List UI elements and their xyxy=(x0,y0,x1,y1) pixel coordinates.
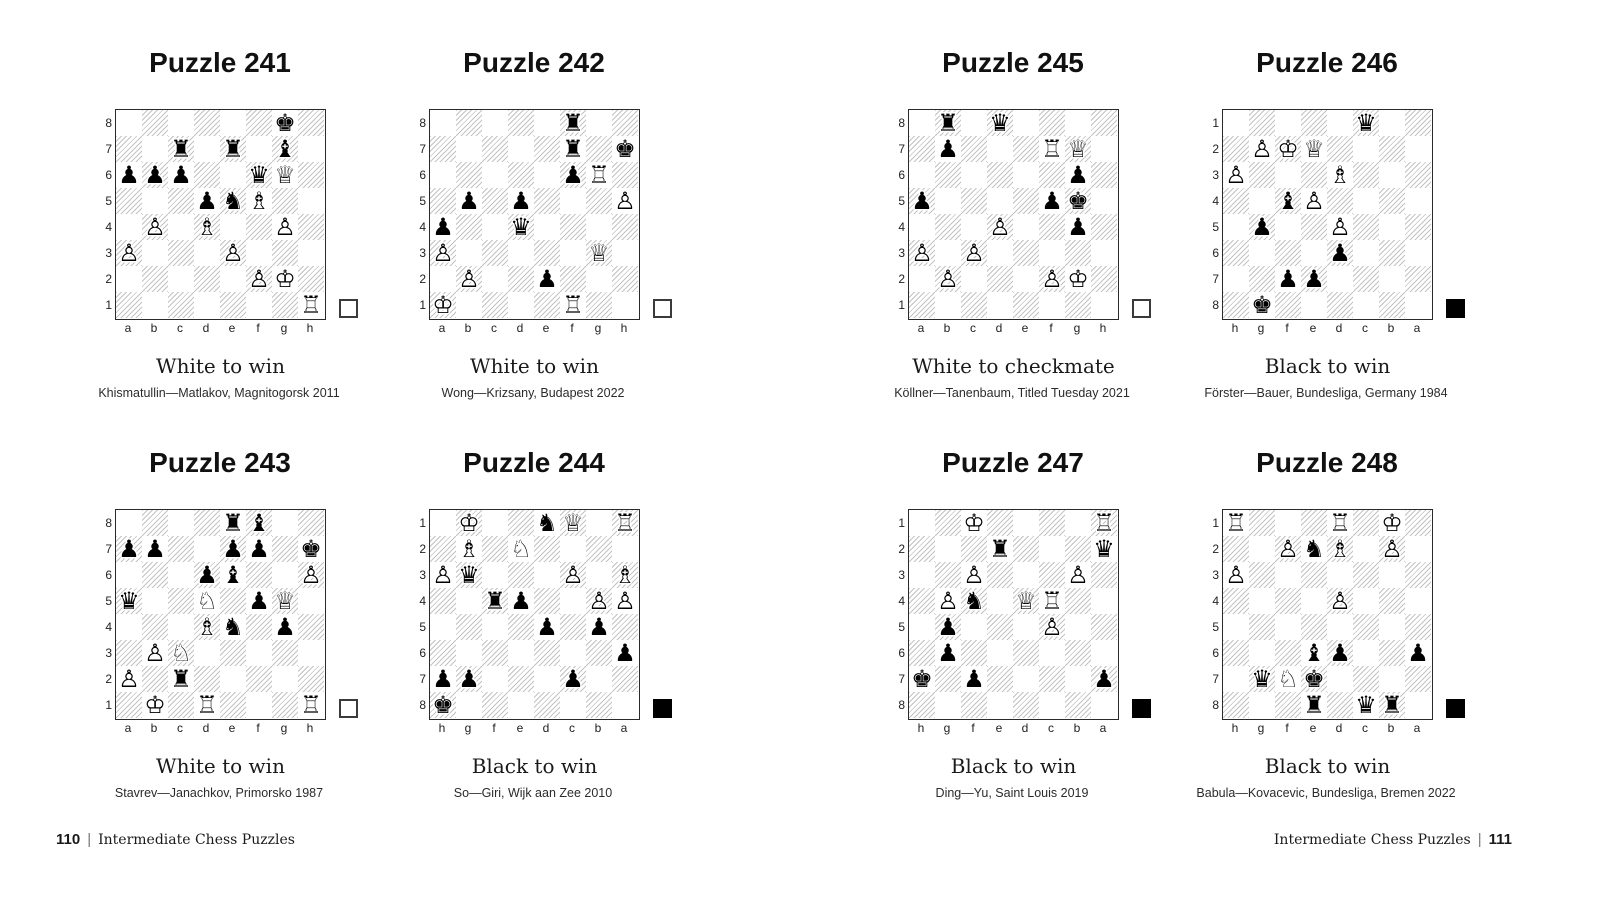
square-h8 xyxy=(1223,692,1249,718)
square-a2 xyxy=(612,536,638,562)
black-pawn-icon: ♟ xyxy=(536,267,558,291)
white-pawn-icon: ♙ xyxy=(1067,563,1089,587)
move-indicator-black xyxy=(653,699,672,718)
square-e8 xyxy=(508,692,534,718)
square-h6 xyxy=(298,162,324,188)
file-label-e: e xyxy=(533,320,559,337)
square-h6: ♙ xyxy=(298,562,324,588)
file-label-e: e xyxy=(986,720,1012,737)
white-queen-icon: ♕ xyxy=(274,589,296,613)
square-d6 xyxy=(194,162,220,188)
square-d4: ♛ xyxy=(508,214,534,240)
footer-right: Intermediate Chess Puzzles|111 xyxy=(1274,831,1512,848)
white-rook-icon: ♖ xyxy=(1225,511,1247,535)
square-b8 xyxy=(142,510,168,536)
white-pawn-icon: ♙ xyxy=(1041,615,1063,639)
square-e4 xyxy=(1301,588,1327,614)
square-g3 xyxy=(1249,562,1275,588)
puzzle-attribution: Babula—Kovacevic, Bundesliga, Bremen 202… xyxy=(1196,785,1456,801)
white-pawn-icon: ♙ xyxy=(1225,163,1247,187)
square-a5 xyxy=(1405,614,1431,640)
file-label-e: e xyxy=(1300,720,1326,737)
square-d5: ♙ xyxy=(1327,214,1353,240)
black-bishop-icon: ♝ xyxy=(1277,189,1299,213)
puzzle-title: Puzzle 244 xyxy=(429,442,639,484)
square-d3 xyxy=(508,240,534,266)
square-c8: ♛ xyxy=(1353,692,1379,718)
file-label-h: h xyxy=(611,320,637,337)
square-c6 xyxy=(1039,640,1065,666)
square-c2 xyxy=(1039,536,1065,562)
square-f4 xyxy=(246,214,272,240)
rank-label-1: 1 xyxy=(1207,510,1219,536)
square-a8 xyxy=(909,110,935,136)
square-d3: ♗ xyxy=(1327,162,1353,188)
file-label-d: d xyxy=(507,320,533,337)
file-label-c: c xyxy=(1352,720,1378,737)
square-h1 xyxy=(430,510,456,536)
square-a8 xyxy=(430,110,456,136)
black-pawn-icon: ♟ xyxy=(458,667,480,691)
move-indicator-white xyxy=(1132,299,1151,318)
white-rook-icon: ♖ xyxy=(1329,511,1351,535)
square-d7 xyxy=(987,136,1013,162)
square-h4 xyxy=(612,214,638,240)
white-pawn-icon: ♙ xyxy=(911,241,933,265)
square-f8: ♝ xyxy=(246,510,272,536)
white-pawn-icon: ♙ xyxy=(118,667,140,691)
square-a8 xyxy=(1091,692,1117,718)
black-pawn-icon: ♟ xyxy=(1329,241,1351,265)
board-area: 12345678 ♔♖♜♛♙♙♙♞♕♖♟♙♟♚♟♟ xyxy=(908,509,1119,720)
square-b8 xyxy=(1065,692,1091,718)
square-g2: ♙ xyxy=(1249,136,1275,162)
square-b4: ♙ xyxy=(142,214,168,240)
square-g8 xyxy=(586,110,612,136)
square-e2 xyxy=(220,266,246,292)
square-b6 xyxy=(1379,640,1405,666)
black-bishop-icon: ♝ xyxy=(1303,641,1325,665)
square-d5: ♟ xyxy=(194,188,220,214)
white-king-icon: ♔ xyxy=(963,511,985,535)
square-h5 xyxy=(909,614,935,640)
square-g2 xyxy=(272,666,298,692)
white-pawn-icon: ♙ xyxy=(222,241,244,265)
square-d2 xyxy=(1013,536,1039,562)
square-a1 xyxy=(909,292,935,318)
chessboard: ♜♛♟♖♕♟♟♟♚♙♟♙♙♙♙♔ xyxy=(908,109,1119,320)
white-queen-icon: ♕ xyxy=(274,163,296,187)
square-b1 xyxy=(456,292,482,318)
square-d1 xyxy=(508,292,534,318)
square-h7: ♚ xyxy=(298,536,324,562)
square-f3 xyxy=(560,240,586,266)
square-a1: ♖ xyxy=(1091,510,1117,536)
square-f5 xyxy=(482,614,508,640)
square-f6: ♛ xyxy=(246,162,272,188)
square-h4 xyxy=(1091,214,1117,240)
square-b6 xyxy=(1065,640,1091,666)
square-b5 xyxy=(1379,614,1405,640)
square-h2 xyxy=(430,536,456,562)
square-f3: ♙ xyxy=(961,562,987,588)
square-f4 xyxy=(1039,214,1065,240)
chessboard-wrap: 87654321 ♚♜♜♝♟♟♟♛♕♟♞♗♙♗♙♙♙♙♔♖ abcdefgh xyxy=(101,109,325,337)
board-area: 12345678 ♔♞♕♖♗♘♙♛♙♗♜♟♙♙♟♟♟♟♟♟♚ xyxy=(429,509,640,720)
board-area: 12345678 ♖♖♔♙♞♗♙♙♙♝♟♟♛♘♚♜♛♜ xyxy=(1222,509,1433,720)
square-a7 xyxy=(909,136,935,162)
black-pawn-icon: ♟ xyxy=(1041,189,1063,213)
black-pawn-icon: ♟ xyxy=(1067,215,1089,239)
square-h6 xyxy=(1091,162,1117,188)
rank-label-3: 3 xyxy=(893,240,905,266)
square-h8 xyxy=(1091,110,1117,136)
rank-label-7: 7 xyxy=(1207,666,1219,692)
black-rook-icon: ♜ xyxy=(1303,693,1325,717)
square-b6 xyxy=(586,640,612,666)
rank-label-2: 2 xyxy=(100,266,112,292)
square-g5 xyxy=(586,188,612,214)
white-king-icon: ♔ xyxy=(432,293,454,317)
rank-label-2: 2 xyxy=(414,266,426,292)
square-b4 xyxy=(1379,588,1405,614)
square-a6 xyxy=(909,162,935,188)
square-h8 xyxy=(909,692,935,718)
square-h3 xyxy=(909,562,935,588)
square-g7 xyxy=(586,136,612,162)
square-a3 xyxy=(116,640,142,666)
rank-label-2: 2 xyxy=(1207,136,1219,162)
square-e7: ♟ xyxy=(1301,266,1327,292)
square-e8 xyxy=(987,692,1013,718)
rank-label-6: 6 xyxy=(414,162,426,188)
square-g5: ♟ xyxy=(935,614,961,640)
square-a3: ♙ xyxy=(909,240,935,266)
square-f3 xyxy=(246,640,272,666)
square-a8 xyxy=(1405,692,1431,718)
file-label-f: f xyxy=(245,320,271,337)
white-pawn-icon: ♙ xyxy=(614,589,636,613)
white-rook-icon: ♖ xyxy=(1041,589,1063,613)
white-bishop-icon: ♗ xyxy=(1329,163,1351,187)
square-h2 xyxy=(298,266,324,292)
white-rook-icon: ♖ xyxy=(1093,511,1115,535)
square-e2: ♘ xyxy=(508,536,534,562)
white-pawn-icon: ♙ xyxy=(963,563,985,587)
white-pawn-icon: ♙ xyxy=(300,563,322,587)
square-g1 xyxy=(586,292,612,318)
white-pawn-icon: ♙ xyxy=(1041,267,1063,291)
puzzle-block-243: Puzzle 243 87654321 ♜♝♟♟♟♟♚♟♝♙♛♘♟♕♗♞♟♙♘♙… xyxy=(101,442,325,842)
puzzle-block-245: Puzzle 245 87654321 ♜♛♟♖♕♟♟♟♚♙♟♙♙♙♙♔ abc… xyxy=(894,42,1118,442)
square-g6 xyxy=(272,562,298,588)
puzzle-attribution: So—Giri, Wijk aan Zee 2010 xyxy=(403,785,663,801)
square-e2: ♟ xyxy=(534,266,560,292)
white-queen-icon: ♕ xyxy=(588,241,610,265)
square-b3 xyxy=(935,240,961,266)
square-e2 xyxy=(220,666,246,692)
chessboard: ♔♞♕♖♗♘♙♛♙♗♜♟♙♙♟♟♟♟♟♟♚ xyxy=(429,509,640,720)
rank-labels: 12345678 xyxy=(1207,510,1219,718)
black-knight-icon: ♞ xyxy=(963,589,985,613)
black-rook-icon: ♜ xyxy=(170,667,192,691)
white-pawn-icon: ♙ xyxy=(144,641,166,665)
rank-label-1: 1 xyxy=(414,292,426,318)
rank-labels: 87654321 xyxy=(414,110,426,318)
square-d7 xyxy=(1327,266,1353,292)
chessboard: ♖♖♔♙♞♗♙♙♙♝♟♟♛♘♚♜♛♜ xyxy=(1222,509,1433,720)
square-e1 xyxy=(508,510,534,536)
square-b8 xyxy=(586,692,612,718)
white-pawn-icon: ♙ xyxy=(1277,537,1299,561)
file-labels: abcdefgh xyxy=(115,320,326,337)
file-label-f: f xyxy=(1274,320,1300,337)
black-pawn-icon: ♟ xyxy=(588,615,610,639)
square-d8 xyxy=(508,110,534,136)
square-h6 xyxy=(909,640,935,666)
black-pawn-icon: ♟ xyxy=(1093,667,1115,691)
square-b3 xyxy=(1379,562,1405,588)
square-e7 xyxy=(534,136,560,162)
square-g4 xyxy=(1249,588,1275,614)
black-pawn-icon: ♟ xyxy=(510,589,532,613)
rank-label-6: 6 xyxy=(414,640,426,666)
square-c3: ♙ xyxy=(560,562,586,588)
square-f7: ♟ xyxy=(246,536,272,562)
square-h6 xyxy=(1223,240,1249,266)
square-g1 xyxy=(1065,292,1091,318)
file-label-b: b xyxy=(141,720,167,737)
puzzle-caption: Black to win xyxy=(429,754,640,778)
white-rook-icon: ♖ xyxy=(196,693,218,717)
square-b3: ♙ xyxy=(1065,562,1091,588)
square-c8 xyxy=(482,110,508,136)
white-king-icon: ♔ xyxy=(274,267,296,291)
square-f6 xyxy=(961,640,987,666)
square-a2: ♙ xyxy=(116,666,142,692)
square-h3 xyxy=(298,640,324,666)
square-f1 xyxy=(1275,110,1301,136)
square-b1 xyxy=(1379,110,1405,136)
black-pawn-icon: ♟ xyxy=(248,537,270,561)
white-pawn-icon: ♙ xyxy=(458,267,480,291)
file-label-e: e xyxy=(219,320,245,337)
white-pawn-icon: ♙ xyxy=(432,241,454,265)
square-g8 xyxy=(456,692,482,718)
square-c7: ♜ xyxy=(168,136,194,162)
square-g4: ♙ xyxy=(272,214,298,240)
rank-label-3: 3 xyxy=(100,640,112,666)
square-b8: ♜ xyxy=(1379,692,1405,718)
square-h2 xyxy=(909,536,935,562)
chessboard-wrap: 87654321 ♜♛♟♖♕♟♟♟♚♙♟♙♙♙♙♔ abcdefgh xyxy=(894,109,1118,337)
square-c2: ♜ xyxy=(168,666,194,692)
square-b1 xyxy=(1065,510,1091,536)
square-h4 xyxy=(298,214,324,240)
square-e6: ♝ xyxy=(1301,640,1327,666)
square-h7: ♚ xyxy=(612,136,638,162)
square-h1: ♖ xyxy=(1223,510,1249,536)
square-e3 xyxy=(220,640,246,666)
square-f6 xyxy=(1275,640,1301,666)
square-c3: ♙ xyxy=(961,240,987,266)
puzzle-caption: Black to win xyxy=(1222,754,1433,778)
square-e5: ♞ xyxy=(220,188,246,214)
rank-label-7: 7 xyxy=(893,136,905,162)
black-pawn-icon: ♟ xyxy=(458,189,480,213)
square-b5 xyxy=(935,188,961,214)
square-c6: ♟ xyxy=(168,162,194,188)
square-g8 xyxy=(1249,692,1275,718)
square-a3: ♙ xyxy=(116,240,142,266)
square-d8 xyxy=(1013,692,1039,718)
square-a5 xyxy=(430,188,456,214)
square-g5 xyxy=(1249,614,1275,640)
rank-label-7: 7 xyxy=(414,666,426,692)
square-d3 xyxy=(1013,562,1039,588)
square-g5 xyxy=(272,188,298,214)
square-f4: ♜ xyxy=(482,588,508,614)
square-g7: ♛ xyxy=(1249,666,1275,692)
move-indicator-black xyxy=(1446,699,1465,718)
square-a6: ♟ xyxy=(1405,640,1431,666)
white-rook-icon: ♖ xyxy=(300,293,322,317)
puzzle-title: Puzzle 241 xyxy=(115,42,325,84)
square-g6: ♟ xyxy=(935,640,961,666)
white-pawn-icon: ♙ xyxy=(1381,537,1403,561)
file-label-h: h xyxy=(1222,720,1248,737)
square-a2 xyxy=(909,266,935,292)
square-h2 xyxy=(1091,266,1117,292)
square-a6 xyxy=(1405,240,1431,266)
square-e6 xyxy=(508,640,534,666)
white-queen-icon: ♕ xyxy=(1303,137,1325,161)
square-f1 xyxy=(246,292,272,318)
square-h2 xyxy=(612,266,638,292)
white-pawn-icon: ♙ xyxy=(937,589,959,613)
square-b4 xyxy=(1065,588,1091,614)
square-f6: ♟ xyxy=(560,162,586,188)
square-f6 xyxy=(482,640,508,666)
square-a2 xyxy=(1405,536,1431,562)
square-d1: ♖ xyxy=(194,692,220,718)
white-pawn-icon: ♙ xyxy=(1251,137,1273,161)
black-pawn-icon: ♟ xyxy=(1303,267,1325,291)
square-c5 xyxy=(168,188,194,214)
square-a3: ♗ xyxy=(612,562,638,588)
chessboard-wrap: 12345678 ♔♞♕♖♗♘♙♛♙♗♜♟♙♙♟♟♟♟♟♟♚ hgfedcba xyxy=(415,509,639,737)
puzzle-title: Puzzle 247 xyxy=(908,442,1118,484)
square-g6: ♖ xyxy=(586,162,612,188)
square-c3 xyxy=(1353,162,1379,188)
page-left: Puzzle 241 87654321 ♚♜♜♝♟♟♟♛♕♟♞♗♙♗♙♙♙♙♔♖… xyxy=(101,42,639,842)
square-c7 xyxy=(1353,266,1379,292)
rank-label-4: 4 xyxy=(893,214,905,240)
rank-label-1: 1 xyxy=(893,292,905,318)
black-pawn-icon: ♟ xyxy=(222,537,244,561)
square-d2 xyxy=(1327,136,1353,162)
black-queen-icon: ♛ xyxy=(1355,693,1377,717)
rank-labels: 12345678 xyxy=(893,510,905,718)
square-h3: ♙ xyxy=(1223,162,1249,188)
rank-label-8: 8 xyxy=(893,692,905,718)
square-c1 xyxy=(482,292,508,318)
square-e4: ♟ xyxy=(508,588,534,614)
footer-separator: | xyxy=(87,831,91,848)
square-h8 xyxy=(612,110,638,136)
file-label-g: g xyxy=(1248,720,1274,737)
rank-label-6: 6 xyxy=(1207,240,1219,266)
square-f2: ♙ xyxy=(1275,536,1301,562)
puzzle-block-248: Puzzle 248 12345678 ♖♖♔♙♞♗♙♙♙♝♟♟♛♘♚♜♛♜ h… xyxy=(1208,442,1432,842)
square-c7: ♟ xyxy=(560,666,586,692)
black-pawn-icon: ♟ xyxy=(144,163,166,187)
square-e4: ♞ xyxy=(220,614,246,640)
square-a4 xyxy=(116,214,142,240)
square-f1: ♔ xyxy=(961,510,987,536)
white-pawn-icon: ♙ xyxy=(1329,589,1351,613)
page-number: 110 xyxy=(56,831,80,848)
rank-label-5: 5 xyxy=(100,588,112,614)
black-pawn-icon: ♟ xyxy=(274,615,296,639)
square-e2: ♜ xyxy=(987,536,1013,562)
square-g1: ♔ xyxy=(456,510,482,536)
chessboard-wrap: 12345678 ♖♖♔♙♞♗♙♙♙♝♟♟♛♘♚♜♛♜ hgfedcba xyxy=(1208,509,1432,737)
square-d8 xyxy=(194,110,220,136)
puzzle-block-242: Puzzle 242 87654321 ♜♜♚♟♖♟♟♙♟♛♙♕♙♟♔♖ abc… xyxy=(415,42,639,442)
move-indicator-white xyxy=(339,299,358,318)
square-b4: ♙ xyxy=(586,588,612,614)
rank-label-7: 7 xyxy=(1207,266,1219,292)
square-a6 xyxy=(116,562,142,588)
square-h2 xyxy=(1223,136,1249,162)
square-g2: ♔ xyxy=(272,266,298,292)
square-b7 xyxy=(142,136,168,162)
square-a7: ♟ xyxy=(1091,666,1117,692)
black-king-icon: ♚ xyxy=(614,137,636,161)
square-c6 xyxy=(961,162,987,188)
square-e1 xyxy=(534,292,560,318)
rank-label-3: 3 xyxy=(1207,562,1219,588)
square-g7: ♝ xyxy=(272,136,298,162)
file-label-a: a xyxy=(429,320,455,337)
black-bishop-icon: ♝ xyxy=(248,511,270,535)
square-d2 xyxy=(194,266,220,292)
square-d4 xyxy=(1327,188,1353,214)
black-king-icon: ♚ xyxy=(1067,189,1089,213)
chessboard: ♜♜♚♟♖♟♟♙♟♛♙♕♙♟♔♖ xyxy=(429,109,640,320)
square-b6: ♟ xyxy=(142,162,168,188)
square-e7 xyxy=(508,666,534,692)
file-label-b: b xyxy=(455,320,481,337)
puzzle-caption: White to win xyxy=(115,754,326,778)
square-f5: ♗ xyxy=(246,188,272,214)
square-h6 xyxy=(430,640,456,666)
square-g6 xyxy=(1249,640,1275,666)
square-d3 xyxy=(987,240,1013,266)
square-c1 xyxy=(168,292,194,318)
white-pawn-icon: ♙ xyxy=(937,267,959,291)
rank-label-8: 8 xyxy=(1207,292,1219,318)
square-b7: ♟ xyxy=(142,536,168,562)
black-pawn-icon: ♟ xyxy=(1329,641,1351,665)
rank-label-6: 6 xyxy=(893,640,905,666)
square-d4: ♕ xyxy=(1013,588,1039,614)
puzzle-block-246: Puzzle 246 12345678 ♛♙♔♕♙♗♝♙♟♙♟♟♟♚ hgfed… xyxy=(1208,42,1432,442)
square-b2: ♙ xyxy=(935,266,961,292)
puzzle-title: Puzzle 248 xyxy=(1222,442,1432,484)
square-h4 xyxy=(298,614,324,640)
